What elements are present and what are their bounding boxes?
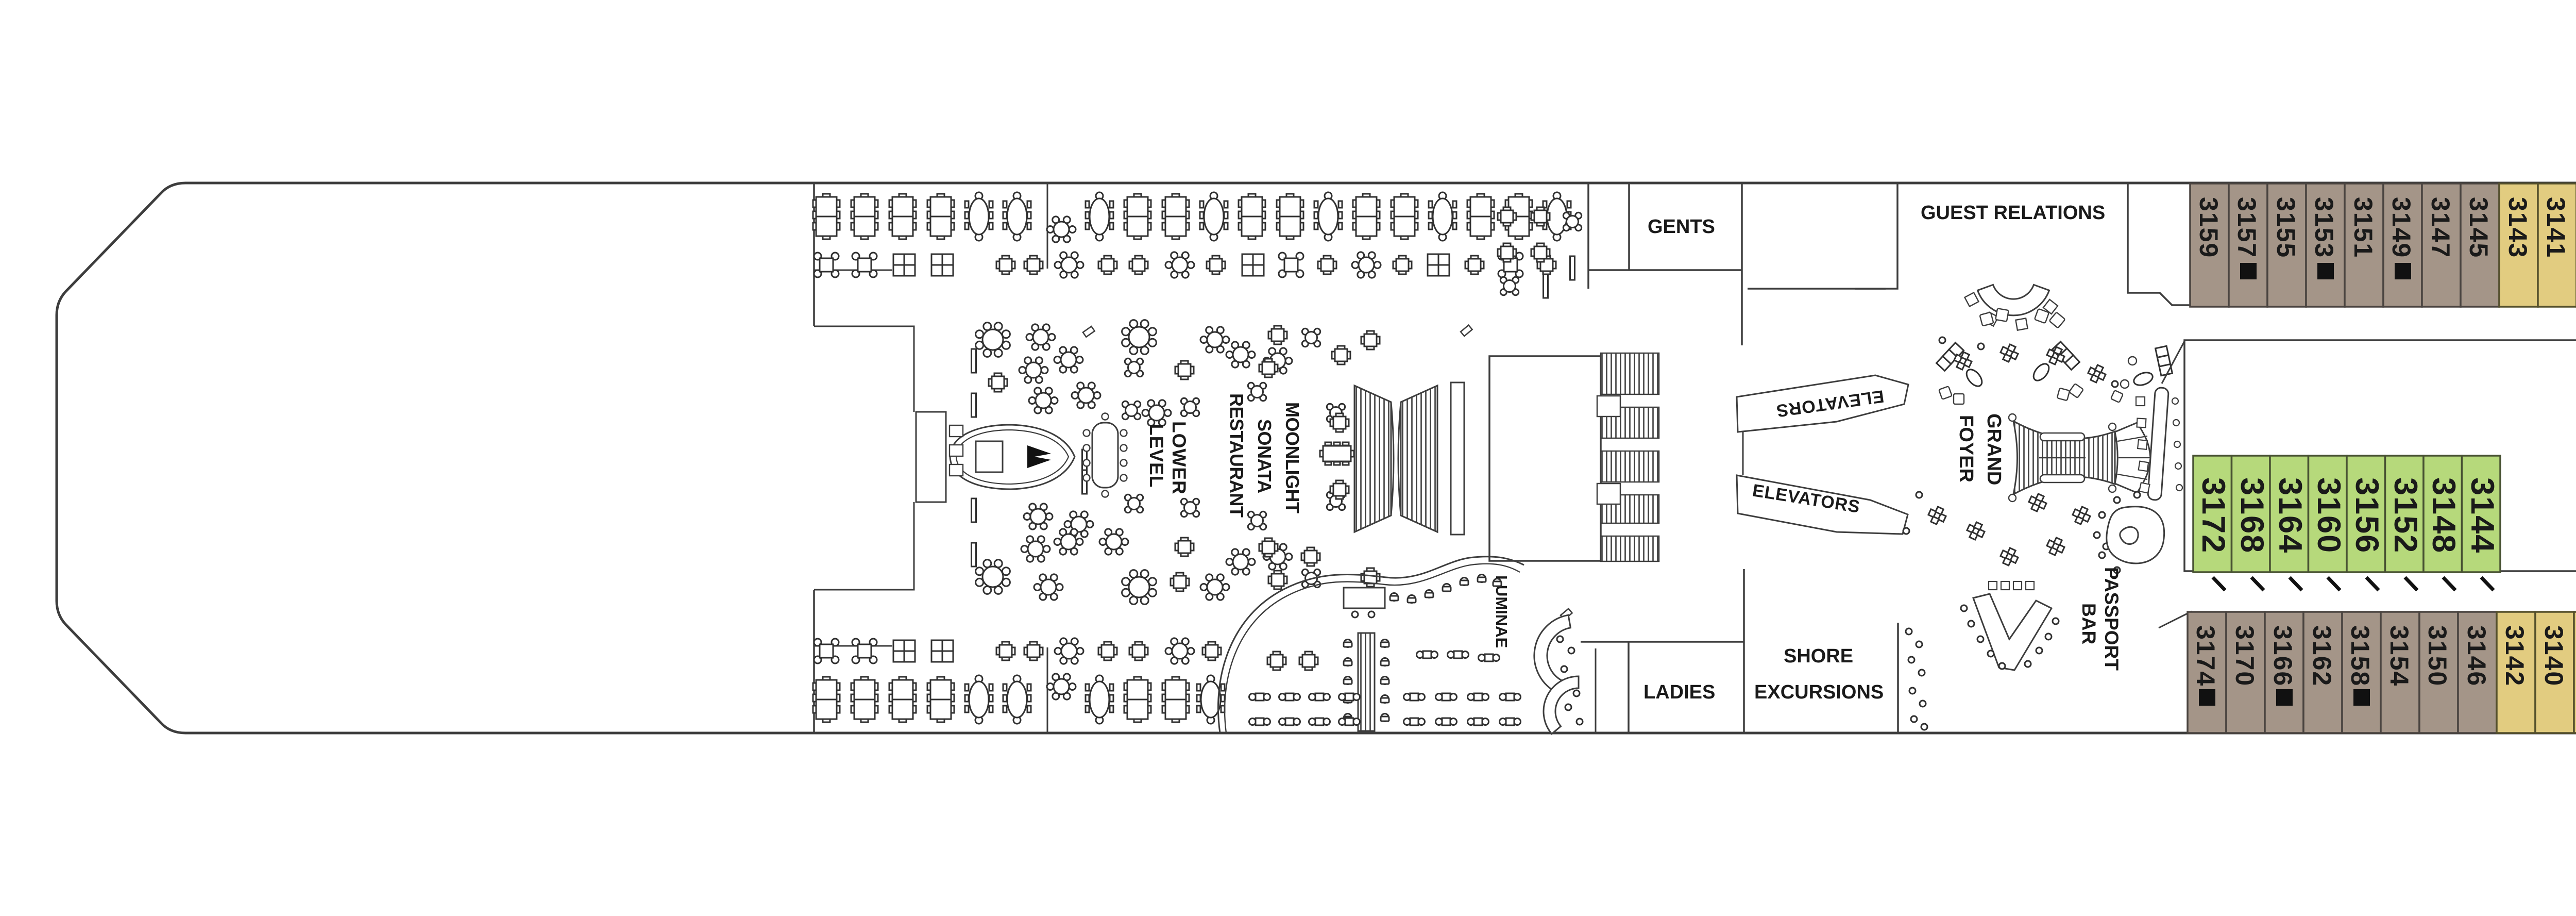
svg-text:RESTAURANT: RESTAURANT	[1226, 393, 1247, 518]
svg-text:3152: 3152	[2387, 477, 2424, 554]
svg-text:3174: 3174	[2191, 625, 2220, 687]
svg-text:3172: 3172	[2195, 477, 2231, 554]
svg-text:3142: 3142	[2500, 625, 2529, 687]
svg-text:3150: 3150	[2423, 625, 2452, 687]
svg-text:3143: 3143	[2503, 197, 2532, 258]
svg-text:SONATA: SONATA	[1254, 419, 1275, 493]
svg-text:SHORE: SHORE	[1784, 645, 1853, 667]
svg-text:3154: 3154	[2385, 625, 2414, 687]
svg-text:FOYER: FOYER	[1955, 415, 1977, 482]
svg-text:3168: 3168	[2234, 477, 2270, 554]
svg-text:3147: 3147	[2426, 197, 2455, 258]
svg-text:EXCURSIONS: EXCURSIONS	[1754, 681, 1884, 703]
svg-text:GENTS: GENTS	[1648, 216, 1715, 238]
svg-text:MOONLIGHT: MOONLIGHT	[1282, 402, 1303, 513]
svg-text:3166: 3166	[2268, 625, 2297, 687]
svg-text:3162: 3162	[2308, 625, 2336, 687]
svg-text:3148: 3148	[2426, 477, 2462, 554]
svg-text:3164: 3164	[2272, 477, 2308, 554]
svg-text:3153: 3153	[2310, 197, 2338, 258]
svg-text:LADIES: LADIES	[1643, 681, 1715, 703]
svg-text:3144: 3144	[2464, 477, 2500, 554]
svg-text:LEVEL: LEVEL	[1146, 424, 1167, 488]
svg-text:3159: 3159	[2194, 197, 2223, 258]
svg-text:3157: 3157	[2232, 197, 2261, 258]
svg-text:3160: 3160	[2311, 477, 2347, 554]
svg-text:3141: 3141	[2541, 197, 2570, 258]
svg-text:3170: 3170	[2230, 625, 2259, 687]
svg-text:3156: 3156	[2349, 477, 2385, 554]
svg-text:3151: 3151	[2349, 197, 2378, 258]
svg-text:3155: 3155	[2272, 197, 2300, 258]
svg-text:PASSPORT: PASSPORT	[2101, 567, 2122, 671]
svg-text:GRAND: GRAND	[1983, 413, 2005, 485]
svg-text:LOWER: LOWER	[1168, 421, 1190, 495]
svg-text:3149: 3149	[2387, 197, 2416, 258]
svg-text:BAR: BAR	[2078, 603, 2099, 644]
svg-text:3140: 3140	[2539, 625, 2568, 687]
svg-text:GUEST RELATIONS: GUEST RELATIONS	[1921, 202, 2105, 224]
svg-text:3146: 3146	[2462, 625, 2491, 687]
svg-text:3158: 3158	[2346, 625, 2375, 687]
svg-text:3145: 3145	[2464, 197, 2493, 258]
